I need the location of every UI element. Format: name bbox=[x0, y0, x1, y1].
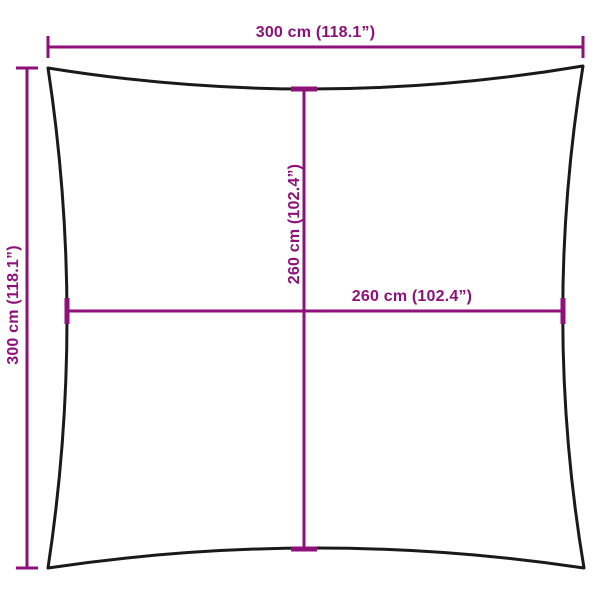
fabric-outline bbox=[48, 66, 584, 568]
inner-height-dimension-label: 260 cm (102.4”) bbox=[286, 24, 304, 424]
inner-width-dimension-label: 260 cm (102.4”) bbox=[299, 288, 525, 306]
dimension-diagram: 300 cm (118.1”) 300 cm (118.1”) 260 cm (… bbox=[0, 0, 600, 600]
outer-width-dimension-label: 300 cm (118.1”) bbox=[48, 24, 583, 42]
outer-height-dimension-label: 300 cm (118.1”) bbox=[5, 105, 23, 505]
